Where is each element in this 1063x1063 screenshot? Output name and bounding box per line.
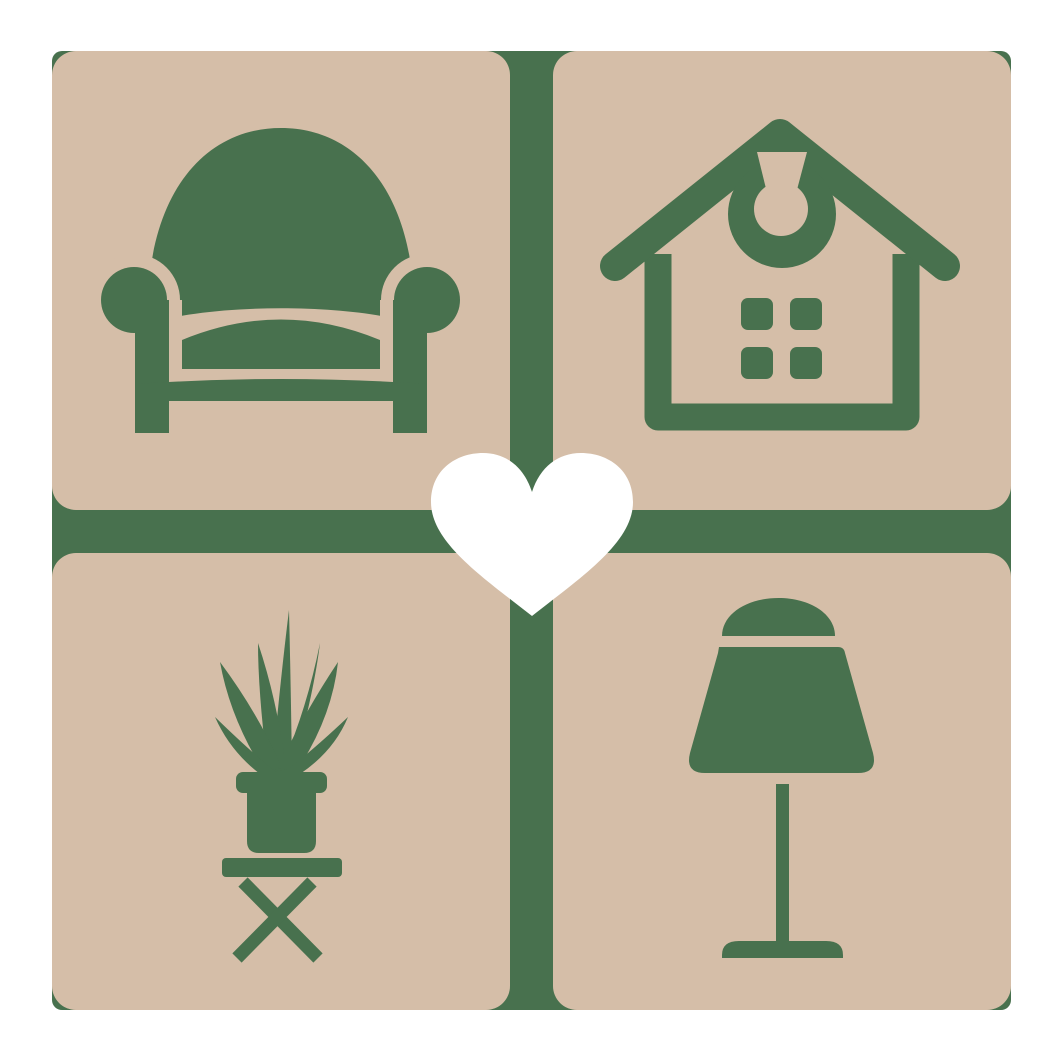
potted-plant-icon — [52, 553, 510, 1010]
heart-icon — [423, 448, 641, 621]
tile-plant — [52, 553, 510, 1010]
logo-canvas — [0, 0, 1063, 1063]
tile-house — [553, 51, 1011, 510]
armchair-icon — [52, 51, 510, 510]
house-icon — [553, 51, 1011, 510]
table-lamp-icon — [553, 553, 1011, 1010]
tile-armchair — [52, 51, 510, 510]
tile-lamp — [553, 553, 1011, 1010]
